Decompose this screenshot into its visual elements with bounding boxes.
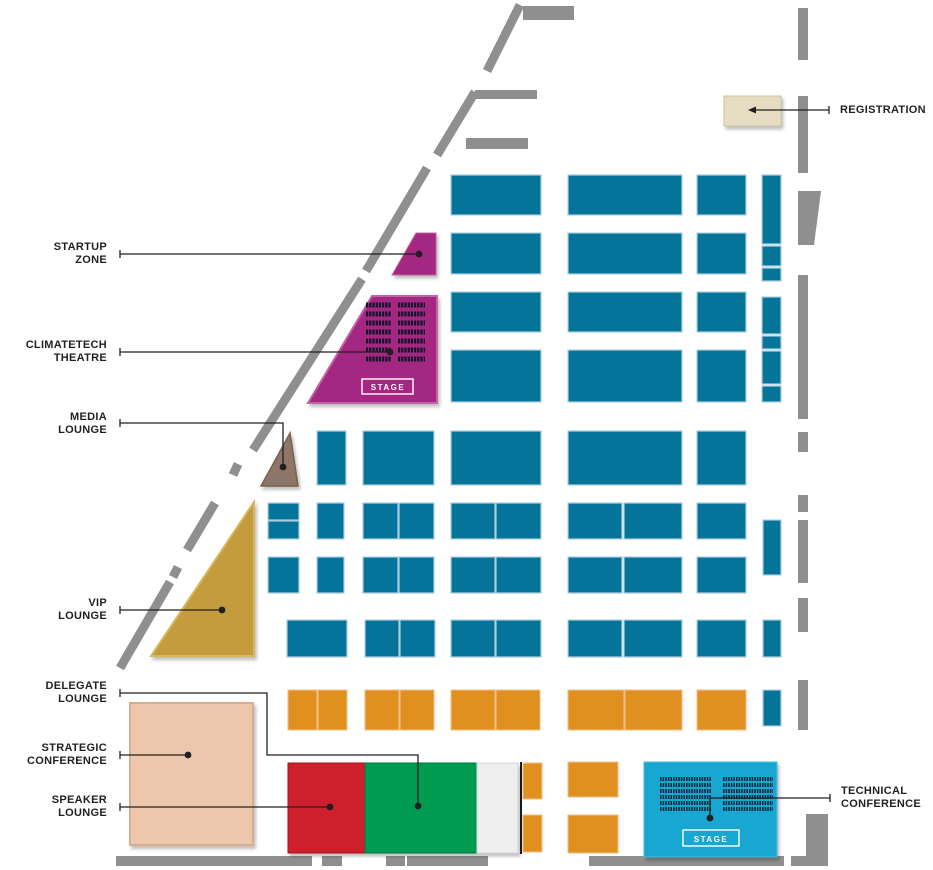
leader-dot [416, 251, 423, 258]
booth [697, 620, 746, 657]
wall-segment [523, 6, 574, 20]
booth [287, 620, 347, 657]
booth [697, 557, 746, 593]
booth [624, 620, 682, 657]
booth [763, 620, 781, 657]
technical-stage-label: STAGE [694, 835, 728, 844]
booth [496, 690, 540, 730]
leader-dot [387, 349, 394, 356]
booth [451, 350, 541, 402]
label-media-lounge: MEDIA LOUNGE [58, 411, 107, 437]
booth [317, 503, 344, 539]
booth [697, 233, 746, 274]
wall-segment [798, 96, 808, 173]
booth [568, 690, 624, 730]
booth [568, 557, 622, 593]
booth [763, 690, 781, 726]
seat-rows [398, 305, 425, 359]
zone-speaker-lounge [288, 763, 365, 853]
booth [568, 350, 682, 402]
wall-segment [798, 275, 808, 419]
booth [365, 620, 399, 657]
booth [697, 431, 746, 485]
leader-dot [415, 803, 422, 810]
booth [451, 690, 495, 730]
booth [624, 557, 682, 593]
booth [697, 175, 746, 215]
wall-segment [173, 567, 178, 577]
zone-delegate-lounge [365, 763, 477, 853]
leader-dot [280, 464, 287, 471]
floor-plan: STAGE STAGE STARTUP ZONE CLIMATETECH THE… [0, 0, 933, 870]
booth [399, 557, 434, 593]
label-climatetech-theatre: CLIMATETECH THEATRE [26, 339, 107, 365]
booth [451, 620, 495, 657]
label-registration: REGISTRATION [840, 104, 926, 117]
label-strategic-conference: STRATEGIC CONFERENCE [27, 742, 107, 768]
leader-dot [219, 607, 226, 614]
label-technical-conference: TECHNICAL CONFERENCE [841, 785, 921, 811]
wall-segment [798, 495, 808, 512]
booth [451, 503, 495, 539]
booth [762, 246, 781, 266]
booth [317, 431, 346, 485]
booth [523, 763, 542, 799]
booth [496, 557, 541, 593]
booth [568, 815, 618, 853]
wall-segment [798, 432, 808, 452]
partition-line [520, 762, 522, 854]
booth [496, 620, 541, 657]
booth [288, 690, 317, 730]
booth [697, 350, 746, 402]
booth [762, 351, 781, 384]
booth [451, 233, 541, 274]
booth [568, 503, 622, 539]
booth [568, 292, 682, 332]
wall-segment [466, 138, 528, 149]
booth [568, 431, 682, 485]
wall-segment [487, 5, 520, 71]
booth [625, 690, 682, 730]
booth [363, 503, 398, 539]
booth [451, 431, 541, 485]
booth [318, 690, 347, 730]
label-startup-zone: STARTUP ZONE [54, 241, 107, 267]
wall-segment [798, 680, 808, 730]
label-vip-lounge: VIP LOUNGE [58, 597, 107, 623]
booth [523, 815, 542, 852]
booth [451, 557, 495, 593]
booth [268, 521, 299, 539]
booth [624, 503, 682, 539]
wall-segment [187, 503, 215, 550]
wall-segment [233, 464, 238, 475]
booth [762, 386, 781, 402]
zone-media-lounge [261, 433, 298, 486]
leader-dot [327, 804, 334, 811]
zone-aux-room [477, 763, 518, 853]
wall-segment [407, 856, 488, 866]
wall-segment [798, 8, 808, 60]
floor-plan-canvas: STAGE STAGE [0, 0, 933, 870]
climatetech-stage-label: STAGE [371, 383, 405, 392]
wall-segment [386, 856, 405, 866]
wall-segment [475, 90, 537, 99]
booth [363, 557, 398, 593]
booth [697, 690, 746, 730]
booth-grid-blue [268, 175, 781, 726]
booth [762, 268, 781, 281]
booth [568, 175, 682, 215]
booth [697, 292, 746, 332]
booth [762, 336, 781, 349]
booth [568, 233, 682, 274]
booth [568, 620, 622, 657]
booth [762, 175, 781, 244]
wall-segment [798, 520, 808, 583]
booth [451, 292, 541, 332]
booth [400, 690, 434, 730]
booth [268, 503, 299, 520]
label-speaker-lounge: SPEAKER LOUNGE [52, 794, 107, 820]
booth [762, 297, 781, 334]
booth [399, 503, 434, 539]
zone-strategic-conference [130, 703, 253, 845]
wall-corner [791, 814, 828, 866]
booth [763, 520, 781, 575]
booth [268, 557, 299, 593]
booth [363, 431, 434, 485]
label-delegate-lounge: DELEGATE LOUNGE [46, 680, 107, 706]
booth [317, 557, 344, 593]
wall-segment [798, 598, 808, 632]
booth [365, 690, 399, 730]
booth [568, 762, 618, 797]
wall-segment [116, 856, 312, 866]
booth [697, 503, 746, 539]
wall-segment [322, 856, 342, 866]
leader-dot [707, 815, 714, 822]
wall-door [798, 191, 821, 245]
booth [400, 620, 435, 657]
booth [496, 503, 541, 539]
booth [451, 175, 541, 215]
leader-dot [185, 752, 192, 759]
